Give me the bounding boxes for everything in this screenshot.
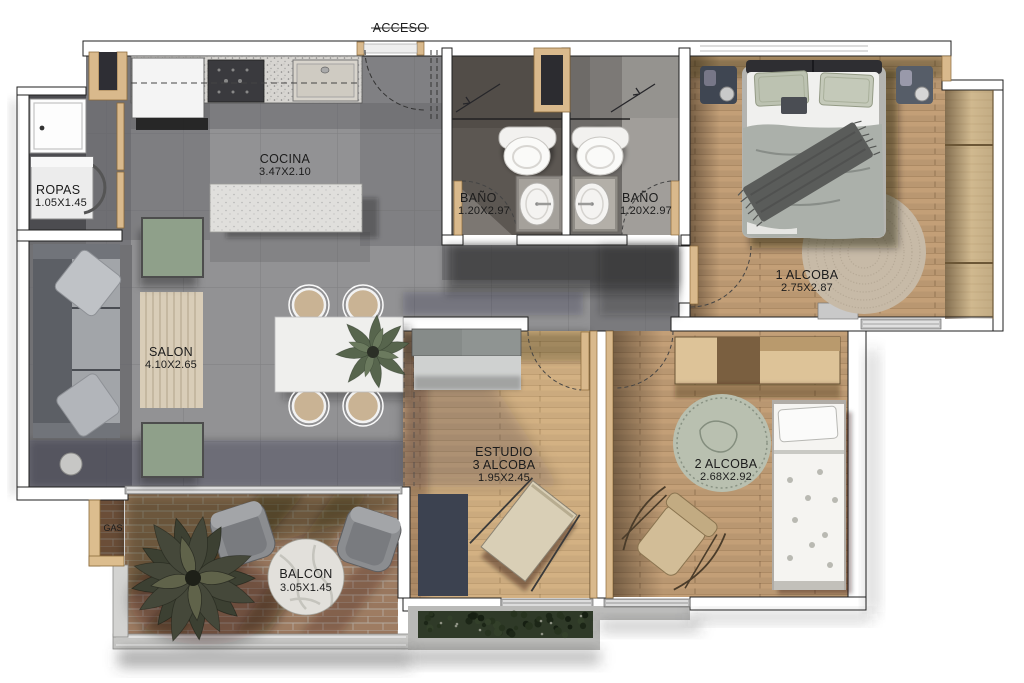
svg-text:BAÑO: BAÑO xyxy=(622,191,659,205)
svg-text:GAS: GAS xyxy=(103,523,122,533)
svg-text:1.95X2.45: 1.95X2.45 xyxy=(478,472,530,484)
svg-text:3 ALCOBA: 3 ALCOBA xyxy=(473,458,536,472)
svg-text:BALCON: BALCON xyxy=(279,567,332,581)
svg-text:2.68X2.92: 2.68X2.92 xyxy=(700,471,752,483)
svg-text:3.05X1.45: 3.05X1.45 xyxy=(280,582,332,594)
svg-text:1.20X2.97: 1.20X2.97 xyxy=(458,205,510,217)
svg-text:2 ALCOBA: 2 ALCOBA xyxy=(695,457,758,471)
svg-text:1 ALCOBA: 1 ALCOBA xyxy=(776,268,839,282)
svg-text:BAÑO: BAÑO xyxy=(460,191,497,205)
svg-text:SALON: SALON xyxy=(149,345,193,359)
svg-text:ROPAS: ROPAS xyxy=(36,183,80,197)
svg-text:ESTUDIO: ESTUDIO xyxy=(475,445,533,459)
svg-text:1.05X1.45: 1.05X1.45 xyxy=(35,197,87,209)
svg-text:2.75X2.87: 2.75X2.87 xyxy=(781,282,833,294)
svg-text:1.20X2.97: 1.20X2.97 xyxy=(620,205,672,217)
svg-text:COCINA: COCINA xyxy=(260,152,311,166)
svg-text:4.10X2.65: 4.10X2.65 xyxy=(145,359,197,371)
svg-text:3.47X2.10: 3.47X2.10 xyxy=(259,166,311,178)
